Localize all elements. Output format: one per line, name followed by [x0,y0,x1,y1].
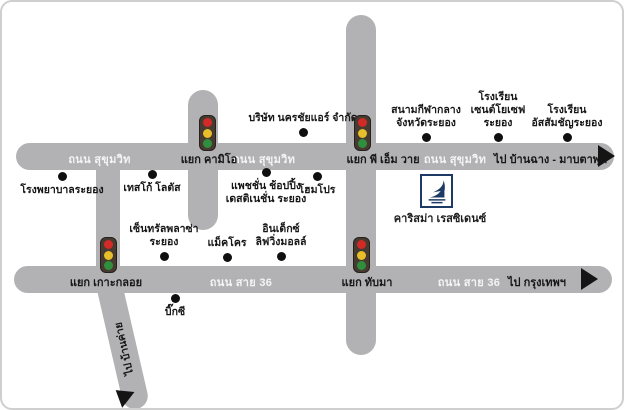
traffic-light-pmy-icon [354,115,371,151]
red-light [104,240,113,249]
poi-dot [422,133,431,142]
rayong-location-map: ไป บ้านค่าย ถนน สุขุมวิท ถนน สุขุมวิท ถน… [0,0,624,410]
junction-label-thap-ma: แยก ทับมา [326,273,408,291]
poi-charisma-residence: คาริสม่า เรสซิเดนซ์ [390,209,490,227]
poi-big-c: บิ๊กซี [148,294,202,319]
poi-label: เทสโก้ โลตัส [123,182,180,195]
poi-dot [313,172,322,181]
poi-label: บริษัท นครชัยแอร์ จำกัด [248,112,357,125]
traffic-light-kameo-icon [199,115,216,151]
dest-label-ban-khai: ไป บ้านค่าย [110,320,139,376]
green-light [104,261,113,270]
poi-rayong-hospital: โรงพยาบาลระยอง [16,172,108,197]
poi-index-living-mall: อินเด็กซ์ ลิฟวิ่งมอลล์ [245,223,317,261]
poi-label: โฮมโปร [299,184,336,197]
yellow-light [203,129,212,138]
red-light [357,240,366,249]
green-light [357,261,366,270]
poi-nakhonchai-air: บริษัท นครชัยแอร์ จำกัด [247,112,359,137]
poi-label: สนามกีฬากลาง จังหวัดระยอง [391,104,461,130]
yellow-light [357,251,366,260]
bird-logo-graphic [424,178,450,205]
junction-label-koh-kloi: แยก เกาะกลอย [62,273,150,291]
poi-dot [171,294,180,303]
poi-dot [277,252,286,261]
road-pmy-vertical [346,15,376,355]
poi-label: แม็คโคร [207,237,246,250]
junction-label-kameo: แยก คามิโอ [165,150,253,168]
poi-label: อินเด็กซ์ ลิฟวิ่งมอลล์ [256,223,307,249]
poi-dot [148,170,157,179]
road-label-sukhumvit-left: ถนน สุขุมวิท [47,150,152,168]
green-light [203,139,212,148]
road-label-route36-left: ถนน สาย 36 [202,273,280,291]
poi-dot [494,133,503,142]
dest-label-ban-chang: ไป บ้านฉาง - มาบตาพุด [494,150,598,168]
yellow-light [358,129,367,138]
arrow-right-icon [581,268,598,290]
poi-dot [58,172,67,181]
dest-label-bangkok: ไป กรุงเทพฯ [496,273,578,291]
green-light [358,139,367,148]
poi-dot [160,252,169,261]
poi-dot [563,133,572,142]
poi-st-joseph-school: โรงเรียน เซนต์โยเซฟ ระยอง [464,91,532,142]
charisma-bird-logo-icon [420,174,453,208]
poi-dot [299,128,308,137]
poi-tesco-lotus: เทสโก้ โลตัส [112,170,192,195]
arrow-right-icon [598,145,615,167]
traffic-light-koh-kloi-icon [100,237,117,273]
red-light [358,118,367,127]
junction-label-pmy: แยก พี เอ็ม วาย [338,150,428,168]
poi-label: เซ็นทรัลพลาซ่า ระยอง [129,223,198,249]
poi-stadium: สนามกีฬากลาง จังหวัดระยอง [384,104,468,142]
poi-assumption-school: โรงเรียน อัสสัมชัญระยอง [524,104,610,142]
poi-label: โรงเรียน เซนต์โยเซฟ ระยอง [471,91,526,130]
red-light [203,118,212,127]
poi-dot [223,253,232,262]
yellow-light [104,251,113,260]
poi-homepro: โฮมโปร [288,172,346,197]
poi-label: บิ๊กซี [165,306,185,319]
poi-dot [262,168,271,177]
poi-label: โรงพยาบาลระยอง [20,184,103,197]
traffic-light-thap-ma-icon [353,237,370,273]
poi-label: โรงเรียน อัสสัมชัญระยอง [532,104,603,130]
